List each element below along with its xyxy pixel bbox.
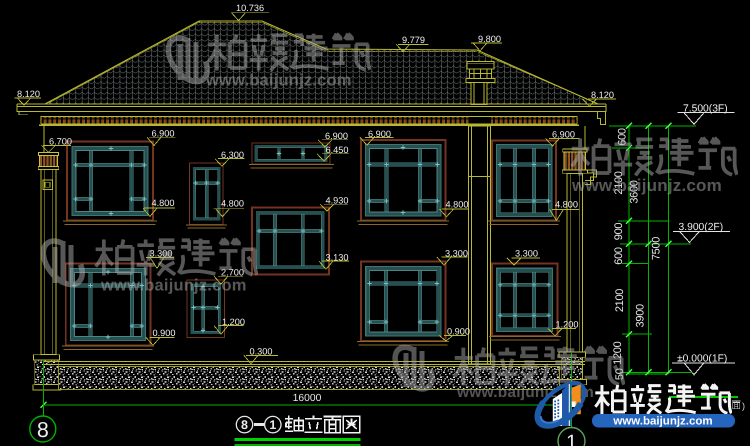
svg-text:1: 1 <box>566 432 577 446</box>
svg-text:900: 900 <box>613 223 625 241</box>
svg-text:4.800: 4.800 <box>221 199 244 209</box>
svg-text:9.779: 9.779 <box>402 35 425 45</box>
svg-text:www.baijunjz.com: www.baijunjz.com <box>571 176 722 195</box>
svg-text:0.900: 0.900 <box>153 328 176 338</box>
svg-text:www.baijunjz.com: www.baijunjz.com <box>100 277 247 295</box>
svg-text:4.800: 4.800 <box>152 198 175 208</box>
svg-text:1: 1 <box>269 418 276 432</box>
svg-text:www.baijunjz.com: www.baijunjz.com <box>205 72 352 90</box>
svg-text:16000: 16000 <box>293 393 322 404</box>
svg-text:8: 8 <box>241 418 248 432</box>
svg-text:1.200: 1.200 <box>556 319 579 329</box>
svg-text:4.800: 4.800 <box>555 200 578 210</box>
svg-text:10.736: 10.736 <box>236 3 264 13</box>
svg-text:0.300: 0.300 <box>250 346 273 356</box>
svg-text:0.900: 0.900 <box>447 326 470 336</box>
svg-text:2100: 2100 <box>614 289 626 312</box>
svg-text:4.800: 4.800 <box>446 200 469 210</box>
svg-text:3900: 3900 <box>635 304 647 327</box>
svg-text:7500: 7500 <box>651 237 663 260</box>
svg-text:3.300: 3.300 <box>515 249 538 259</box>
svg-text:600: 600 <box>613 247 625 265</box>
svg-text:8: 8 <box>37 418 49 442</box>
svg-text:www.baijunjz.com: www.baijunjz.com <box>612 416 712 428</box>
svg-text:): ) <box>742 401 745 411</box>
